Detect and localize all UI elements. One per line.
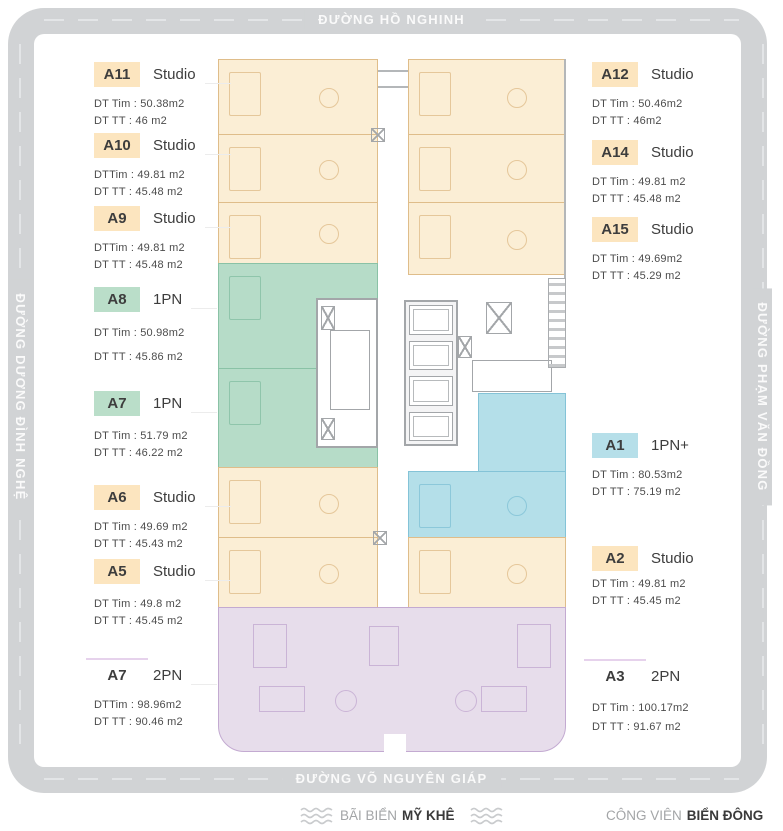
unit-area-tt: DT TT : 45.86 m2	[94, 351, 234, 363]
unit-area-tt: DT TT : 45.48 m2	[592, 193, 732, 205]
unit-area-tim: DTTim : 49.81 m2	[94, 169, 234, 181]
unit-area-tt: DT TT : 46m2	[592, 115, 732, 127]
street-name-right: ĐƯỜNG PHẠM VĂN ĐỒNG	[753, 288, 772, 505]
label-tick	[191, 308, 217, 309]
unit-badge-a8[interactable]: A8	[94, 287, 140, 312]
unit-region-2pn-block[interactable]	[218, 607, 566, 752]
unit-type: 2PN	[153, 667, 182, 684]
legend-beach-name: MỸ KHÊ	[402, 808, 455, 823]
unit-area-tim: DT Tim : 50.38m2	[94, 98, 234, 110]
unit-type: Studio	[153, 210, 196, 227]
unit-region-a12[interactable]	[408, 59, 566, 135]
label-tick	[205, 506, 231, 507]
unit-area-tt: DT TT : 90.46 m2	[94, 716, 234, 728]
unit-type: Studio	[153, 489, 196, 506]
unit-label-a15: A15Studio DT Tim : 49.69m2 DT TT : 45.29…	[592, 217, 732, 282]
waves-icon	[300, 806, 334, 826]
unit-badge-a6[interactable]: A6	[94, 485, 140, 510]
unit-area-tim: DT Tim : 49.69m2	[592, 253, 732, 265]
unit-badge-a10[interactable]: A10	[94, 133, 140, 158]
legend-park-prefix: CÔNG VIÊN	[606, 808, 682, 823]
unit-region-a10[interactable]	[218, 134, 378, 203]
unit-area-tt: DT TT : 45.45 m2	[94, 615, 234, 627]
unit-region-a1-upper[interactable]	[478, 393, 566, 472]
unit-area-tt: DT TT : 45.48 m2	[94, 259, 234, 271]
unit-region-a1-lower[interactable]	[408, 471, 566, 538]
unit-area-tim: DT Tim : 49.81 m2	[592, 176, 732, 188]
unit-label-a7-2pn: A72PN DTTim : 98.96m2 DT TT : 90.46 m2	[94, 663, 234, 728]
unit-region-a15[interactable]	[408, 202, 566, 275]
unit-type: 1PN	[153, 291, 182, 308]
label-tick	[191, 684, 217, 685]
unit-area-tt: DT TT : 45.45 m2	[592, 595, 732, 607]
unit-area-tim: DT Tim : 50.46m2	[592, 98, 732, 110]
unit-area-tt: DT TT : 45.48 m2	[94, 186, 234, 198]
floorplan-page: ĐƯỜNG HỒ NGHINH ĐƯỜNG VÕ NGUYÊN GIÁP ĐƯỜ…	[0, 0, 783, 831]
left-core-room	[330, 330, 370, 410]
stairs-icon	[321, 418, 335, 440]
unit-area-tt: DT TT : 45.29 m2	[592, 270, 732, 282]
unit-type: Studio	[651, 221, 694, 238]
unit-badge-a1[interactable]: A1	[592, 433, 638, 458]
unit-label-a1: A11PN+ DT Tim : 80.53m2 DT TT : 75.19 m2	[592, 433, 732, 498]
unit-badge-a12[interactable]: A12	[592, 62, 638, 87]
elevator-cell	[409, 341, 453, 371]
elevator-cell	[409, 305, 453, 335]
label-tick	[205, 154, 231, 155]
unit-type: Studio	[153, 137, 196, 154]
unit-area-tt: DT TT : 45.43 m2	[94, 538, 234, 550]
legend-park: CÔNG VIÊNBIỂN ĐÔNG	[606, 808, 763, 823]
plan-bottom-notch	[384, 734, 406, 752]
unit-area-tim: DTTim : 98.96m2	[94, 699, 234, 711]
unit-type: Studio	[651, 66, 694, 83]
unit-label-a11: A11Studio DT Tim : 50.38m2 DT TT : 46 m2	[94, 62, 234, 127]
legend-park-name: BIỂN ĐÔNG	[687, 808, 764, 823]
label-tick	[205, 580, 231, 581]
unit-label-a14: A14Studio DT Tim : 49.81 m2 DT TT : 45.4…	[592, 140, 732, 205]
unit-badge-a15[interactable]: A15	[592, 217, 638, 242]
unit-label-a7: A71PN DT Tim : 51.79 m2 DT TT : 46.22 m2	[94, 391, 234, 459]
unit-region-a9[interactable]	[218, 202, 378, 264]
street-name-top: ĐƯỜNG HỒ NGHINH	[304, 10, 479, 29]
unit-region-a2[interactable]	[408, 537, 566, 608]
elevator-bank	[404, 300, 458, 446]
unit-area-tt: DT TT : 46.22 m2	[94, 447, 234, 459]
unit-region-a5[interactable]	[218, 537, 378, 608]
unit-label-a12: A12Studio DT Tim : 50.46m2 DT TT : 46m2	[592, 62, 732, 127]
unit-badge-a7[interactable]: A7	[94, 391, 140, 416]
legend-beach: BÃI BIỂNMỸ KHÊ	[340, 808, 455, 823]
unit-label-a8: A81PN DT Tim : 50.98m2 DT TT : 45.86 m2	[94, 287, 234, 363]
unit-badge-a5[interactable]: A5	[94, 559, 140, 584]
unit-area-tt: DT TT : 91.67 m2	[592, 721, 732, 733]
label-tick	[205, 83, 231, 84]
plan-edge-line	[564, 59, 566, 278]
unit-label-a6: A6Studio DT Tim : 49.69 m2 DT TT : 45.43…	[94, 485, 234, 550]
unit-badge-a9[interactable]: A9	[94, 206, 140, 231]
unit-type: 1PN+	[651, 437, 689, 454]
unit-area-tt: DT TT : 46 m2	[94, 115, 234, 127]
unit-type: Studio	[651, 550, 694, 567]
unit-badge-a3[interactable]: A3	[592, 664, 638, 689]
waves-icon	[470, 806, 504, 826]
unit-area-tim: DT Tim : 80.53m2	[592, 469, 732, 481]
corridor-bridge	[378, 86, 408, 88]
window-connector-icon	[373, 531, 387, 545]
unit-label-a5: A5Studio DT Tim : 49.8 m2 DT TT : 45.45 …	[94, 559, 234, 627]
label-tick	[191, 412, 217, 413]
unit-area-tim: DT Tim : 49.8 m2	[94, 598, 234, 610]
label-tick	[205, 227, 231, 228]
unit-label-a2: A2Studio DT Tim : 49.81 m2 DT TT : 45.45…	[592, 546, 732, 607]
unit-area-tim: DTTim : 49.81 m2	[94, 242, 234, 254]
lobby-vestibule	[472, 360, 552, 392]
corridor-bridge	[378, 70, 408, 72]
legend-beach-prefix: BÃI BIỂN	[340, 808, 397, 823]
unit-label-a3: A32PN DT Tim : 100.17m2 DT TT : 91.67 m2	[592, 664, 732, 733]
elevator-cell	[409, 376, 453, 406]
unit-region-a11[interactable]	[218, 59, 378, 135]
unit-region-a6[interactable]	[218, 467, 378, 538]
stairs-icon	[486, 302, 512, 334]
unit-label-a9: A9Studio DTTim : 49.81 m2 DT TT : 45.48 …	[94, 206, 234, 271]
unit-type: Studio	[651, 144, 694, 161]
unit-region-a14[interactable]	[408, 134, 566, 203]
unit-area-tim: DT Tim : 51.79 m2	[94, 430, 234, 442]
unit-type: Studio	[153, 563, 196, 580]
unit-badge-a11[interactable]: A11	[94, 62, 140, 87]
unit-badge-a7-2pn[interactable]: A7	[94, 663, 140, 688]
unit-badge-a14[interactable]: A14	[592, 140, 638, 165]
window-connector-icon	[371, 128, 385, 142]
street-name-left: ĐƯỜNG DƯƠNG ĐÌNH NGHỆ	[11, 280, 30, 515]
stairs-icon	[458, 336, 472, 358]
unit-area-tim: DT Tim : 100.17m2	[592, 702, 732, 714]
unit-area-tim: DT Tim : 50.98m2	[94, 327, 234, 339]
unit-type: Studio	[153, 66, 196, 83]
elevator-cell	[409, 412, 453, 442]
unit-type: 2PN	[651, 668, 680, 685]
service-shaft-hatch	[548, 278, 566, 368]
stairs-icon	[321, 306, 335, 330]
unit-area-tim: DT Tim : 49.69 m2	[94, 521, 234, 533]
unit-badge-a2[interactable]: A2	[592, 546, 638, 571]
unit-area-tt: DT TT : 75.19 m2	[592, 486, 732, 498]
street-name-bottom: ĐƯỜNG VÕ NGUYÊN GIÁP	[282, 769, 502, 788]
unit-label-a10: A10Studio DTTim : 49.81 m2 DT TT : 45.48…	[94, 133, 234, 198]
unit-area-tim: DT Tim : 49.81 m2	[592, 578, 732, 590]
unit-type: 1PN	[153, 395, 182, 412]
